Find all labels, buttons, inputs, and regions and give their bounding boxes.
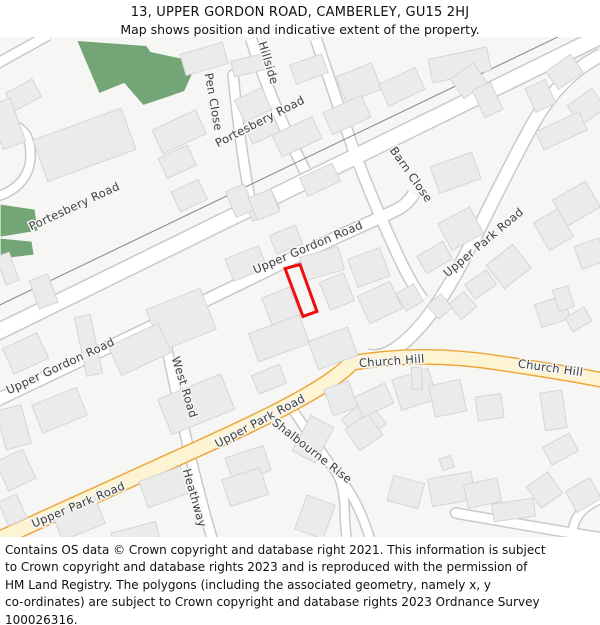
- roads-layer: [0, 37, 600, 537]
- building: [357, 281, 402, 323]
- building: [32, 387, 88, 433]
- building: [429, 379, 467, 417]
- copyright-footer: Contains OS data © Crown copyright and d…: [0, 537, 600, 625]
- footer-line: Contains OS data © Crown copyright and d…: [5, 542, 600, 559]
- building: [152, 110, 206, 154]
- green-area: [77, 41, 193, 105]
- building: [251, 364, 286, 394]
- footer-line: HM Land Registry. The polygons (includin…: [5, 577, 600, 594]
- building: [565, 307, 592, 332]
- road-fill: [161, 322, 213, 537]
- page: 13, UPPER GORDON ROAD, CAMBERLEY, GU15 2…: [0, 0, 600, 625]
- page-title: 13, UPPER GORDON ROAD, CAMBERLEY, GU15 2…: [0, 0, 600, 20]
- building: [33, 108, 136, 181]
- building: [171, 179, 207, 212]
- footer-line: co-ordinates) are subject to Crown copyr…: [5, 594, 600, 611]
- building: [222, 468, 269, 507]
- building: [574, 238, 600, 269]
- building: [249, 315, 310, 362]
- building: [0, 405, 31, 450]
- map-container: Portesbery RoadPortesbery RoadPen CloseH…: [0, 37, 600, 537]
- road-fill: [0, 37, 49, 65]
- building: [319, 273, 354, 310]
- building: [290, 54, 329, 84]
- building: [540, 390, 567, 431]
- building: [180, 42, 228, 75]
- building: [475, 394, 504, 421]
- building: [379, 68, 425, 107]
- building: [387, 475, 425, 508]
- footer-line: 100026316.: [5, 612, 600, 625]
- building: [430, 152, 481, 193]
- building: [0, 449, 36, 491]
- building: [348, 248, 390, 288]
- street-label: Portesbery Road: [27, 179, 122, 233]
- building: [295, 495, 335, 537]
- map-header: 13, UPPER GORDON ROAD, CAMBERLEY, GU15 2…: [0, 0, 600, 37]
- building: [411, 367, 422, 389]
- building: [111, 521, 159, 537]
- street-label: Pen Close: [202, 72, 226, 132]
- building: [543, 433, 579, 465]
- page-subtitle: Map shows position and indicative extent…: [0, 20, 600, 37]
- map-canvas: Portesbery RoadPortesbery RoadPen CloseH…: [0, 37, 600, 537]
- building: [439, 455, 454, 470]
- footer-line: to Crown copyright and database rights 2…: [5, 559, 600, 576]
- building: [0, 252, 19, 285]
- building: [465, 270, 497, 300]
